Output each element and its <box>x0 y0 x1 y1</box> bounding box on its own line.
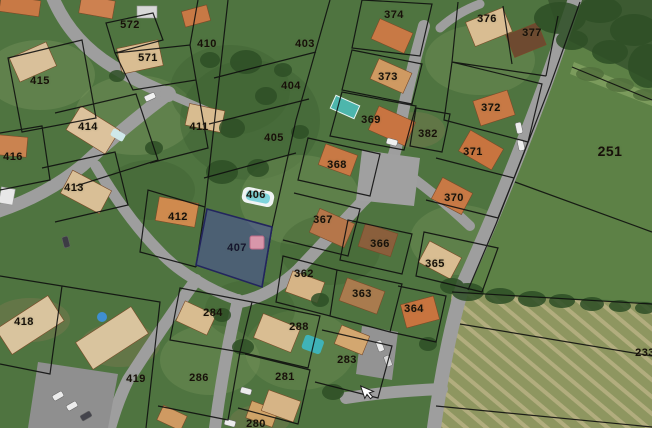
field-plowed <box>434 292 652 428</box>
selection-marker <box>250 236 264 249</box>
aerial-basemap <box>0 0 652 428</box>
cadastral-map[interactable]: 5725714104154144114164134124034044054064… <box>0 0 652 428</box>
